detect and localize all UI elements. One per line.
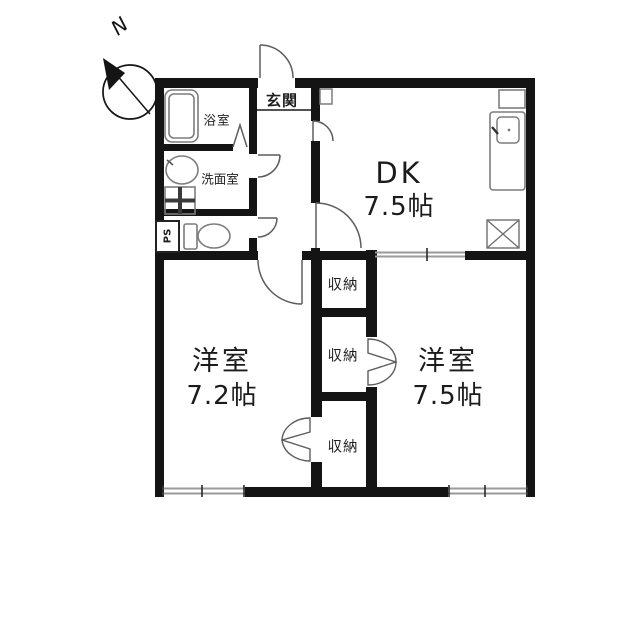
western-room-right-label: 洋室 7.5帖 — [412, 345, 483, 413]
bathroom-label: 浴室 — [203, 110, 230, 129]
pipe-space-label: PS — [162, 229, 173, 244]
western-room-right-size: 7.5帖 — [412, 379, 483, 413]
storage-bottom-label: 収納 — [328, 436, 359, 457]
western-room-left-label: 洋室 7.2帖 — [186, 345, 257, 413]
sliding-door-icon — [375, 248, 465, 261]
dk-name: DK — [363, 156, 434, 190]
shoe-cabinet-icon — [320, 89, 332, 104]
compass-north-icon — [103, 58, 157, 119]
sliding-window-icon — [448, 485, 528, 497]
western-room-left-name: 洋室 — [186, 345, 257, 379]
bifold-closet-door-icon — [282, 418, 310, 461]
bathtub-icon — [165, 90, 198, 142]
kitchen-sink-icon — [492, 117, 519, 143]
refrigerator-space-icon — [487, 220, 519, 248]
bifold-closet-door-icon — [368, 339, 396, 385]
dk-size: 7.5帖 — [363, 190, 434, 224]
dk-label: DK 7.5帖 — [363, 156, 434, 224]
sliding-window-icon — [162, 485, 245, 497]
storage-middle-label: 収納 — [328, 345, 359, 366]
western-room-right-name: 洋室 — [412, 345, 483, 379]
bathroom-folding-door-icon — [233, 125, 247, 147]
toilet-icon — [184, 224, 230, 249]
cabinet-icon — [499, 90, 525, 108]
storage-top-label: 収納 — [328, 274, 359, 295]
genkan-label: 玄関 — [266, 90, 298, 111]
washbasin-icon — [166, 156, 198, 184]
washroom-label: 洗面室 — [201, 169, 239, 188]
floorplan-image: N 玄関 浴室 洗面室 PS DK 7.5帖 洋室 7.2帖 洋室 7.5帖 収… — [0, 0, 639, 640]
floorplan-drawing — [0, 0, 639, 640]
western-room-left-size: 7.2帖 — [186, 379, 257, 413]
